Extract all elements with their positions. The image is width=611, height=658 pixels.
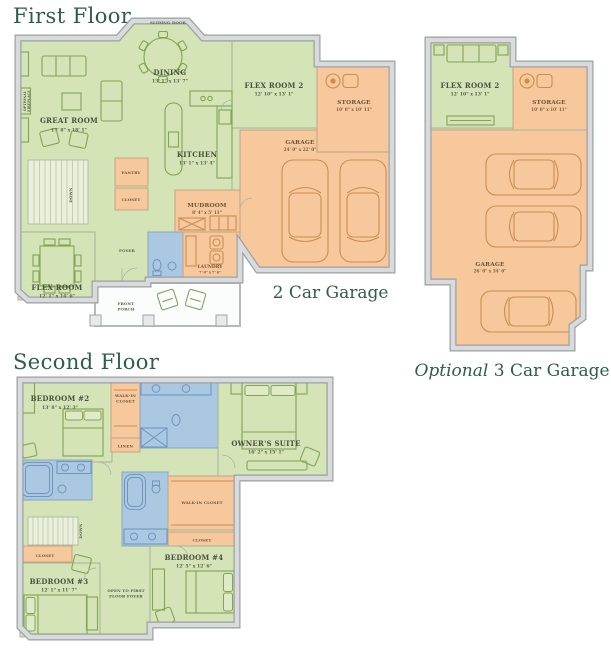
sliding-door-label: SLIDING DOOR — [150, 20, 187, 25]
room-owners-bath — [140, 380, 218, 448]
foyer-label: FOYER — [119, 248, 135, 253]
front-porch-label-line2: PORCH — [117, 307, 134, 312]
flex-room-2-alt-label: FLEX ROOM 2 — [441, 81, 500, 90]
walk-in-closet-top-label-line1: WALK-IN — [114, 393, 136, 398]
pillow — [84, 411, 101, 420]
optional-fireplace-label: OPTIONAL FIREPLACE — [23, 90, 31, 112]
linen-label: LINEN — [118, 444, 134, 449]
dining-dims: 13' 1" x 13' 7" — [152, 79, 188, 85]
flex-room-2-label: FLEX ROOM 2 — [245, 81, 304, 90]
bedroom-2-dims: 13' 8" x 12' 3" — [42, 405, 78, 411]
pantry-label: PANTRY — [122, 170, 141, 175]
flex-room-2-dims: 12' 10" x 13' 1" — [254, 92, 293, 98]
front-porch — [90, 283, 240, 326]
closet-mid-label: CLOSET — [193, 538, 212, 543]
first-floor-plan: SLIDING DOOR DINING 13' 1" x 13' 7" GREA… — [18, 20, 392, 326]
bedroom-3-dims: 12' 1" x 11' 7" — [41, 588, 77, 594]
porch-pillar — [216, 315, 227, 326]
garage-alt-dims: 26' 0" x 34' 0" — [474, 269, 507, 274]
great-room-label: GREAT ROOM — [40, 116, 98, 125]
laundry-dims: 7' 0" x 7' 6" — [199, 271, 221, 275]
mudroom-dims: 8' 4" x 5' 11" — [192, 210, 222, 215]
pillow — [26, 615, 35, 631]
second-floor-stairs — [28, 517, 78, 545]
flex-room-2-alt-dims: 12' 10" x 13' 1" — [450, 92, 489, 98]
owners-suite-label: OWNER'S SUITE — [231, 439, 300, 448]
owners-suite-dims: 16' 2" x 15' 1" — [248, 450, 284, 456]
second-floor-plan: BEDROOM #2 13' 8" x 12' 3" WALK-IN CLOSE… — [20, 380, 330, 637]
floorplan-canvas: First Floor Second Floor 2 Car Garage Op… — [0, 0, 611, 658]
bedroom-4-label: BEDROOM #4 — [165, 553, 224, 562]
front-porch-label-line1: FRONT — [118, 301, 135, 306]
down-label-first: DOWN — [68, 187, 73, 203]
garage-dims: 24' 0" x 22' 0" — [284, 147, 317, 152]
first-floor-stairs — [28, 160, 88, 224]
pillow — [245, 386, 269, 396]
storage-label: STORAGE — [337, 100, 371, 106]
storage-alt-dims: 10' 0" x 10' 11" — [531, 107, 567, 112]
closet-left-label: CLOSET — [36, 553, 55, 558]
bedroom-4-dims: 12' 5" x 12' 6" — [176, 564, 212, 570]
garage-alt-label: GARAGE — [475, 262, 505, 268]
bedroom-3-label: BEDROOM #3 — [30, 577, 89, 586]
svg-text:FIREPLACE: FIREPLACE — [27, 90, 31, 112]
great-room-dims: 17' 8" x 18' 1" — [51, 128, 87, 134]
kitchen-label: KITCHEN — [177, 150, 218, 159]
pillow — [66, 411, 83, 420]
walk-in-closet-mid-label: WALK-IN CLOSET — [180, 500, 222, 505]
porch-pillar — [143, 315, 154, 326]
mudroom-label: MUDROOM — [187, 203, 227, 209]
walk-in-closet-top-label-line2: CLOSET — [116, 399, 135, 404]
pillow — [26, 598, 35, 614]
bedroom-2-label: BEDROOM #2 — [31, 394, 90, 403]
kitchen-dims: 13' 1" x 13' 4" — [179, 161, 215, 167]
porch-pillar — [90, 315, 101, 326]
open-foyer-label-line1: OPEN TO FIRST — [107, 588, 144, 593]
storage-dims: 10' 0" x 10' 11" — [336, 107, 372, 112]
flex-room-label: FLEX ROOM — [31, 283, 82, 292]
pillow — [271, 386, 295, 396]
pillow — [224, 574, 233, 592]
pillow — [224, 593, 233, 611]
laundry-label: LAUNDRY — [198, 265, 224, 270]
open-foyer-label-line2: FLOOR FOYER — [109, 594, 143, 599]
dining-label: DINING — [154, 68, 187, 77]
flex-room-dims: 12' 1" x 14' 6" — [39, 294, 75, 300]
room-bedroom-2 — [20, 380, 112, 462]
optional-garage-plan: FLEX ROOM 2 12' 10" x 13' 1" STORAGE 10'… — [428, 40, 590, 348]
garage-label: GARAGE — [285, 140, 315, 146]
room-walk-in-closet-top — [111, 380, 140, 438]
down-label-second: DOWN — [78, 523, 83, 539]
closet-label: CLOSET — [122, 197, 141, 202]
storage-alt-label: STORAGE — [532, 100, 566, 106]
floorplan-drawing: SLIDING DOOR DINING 13' 1" x 13' 7" GREA… — [0, 0, 611, 658]
